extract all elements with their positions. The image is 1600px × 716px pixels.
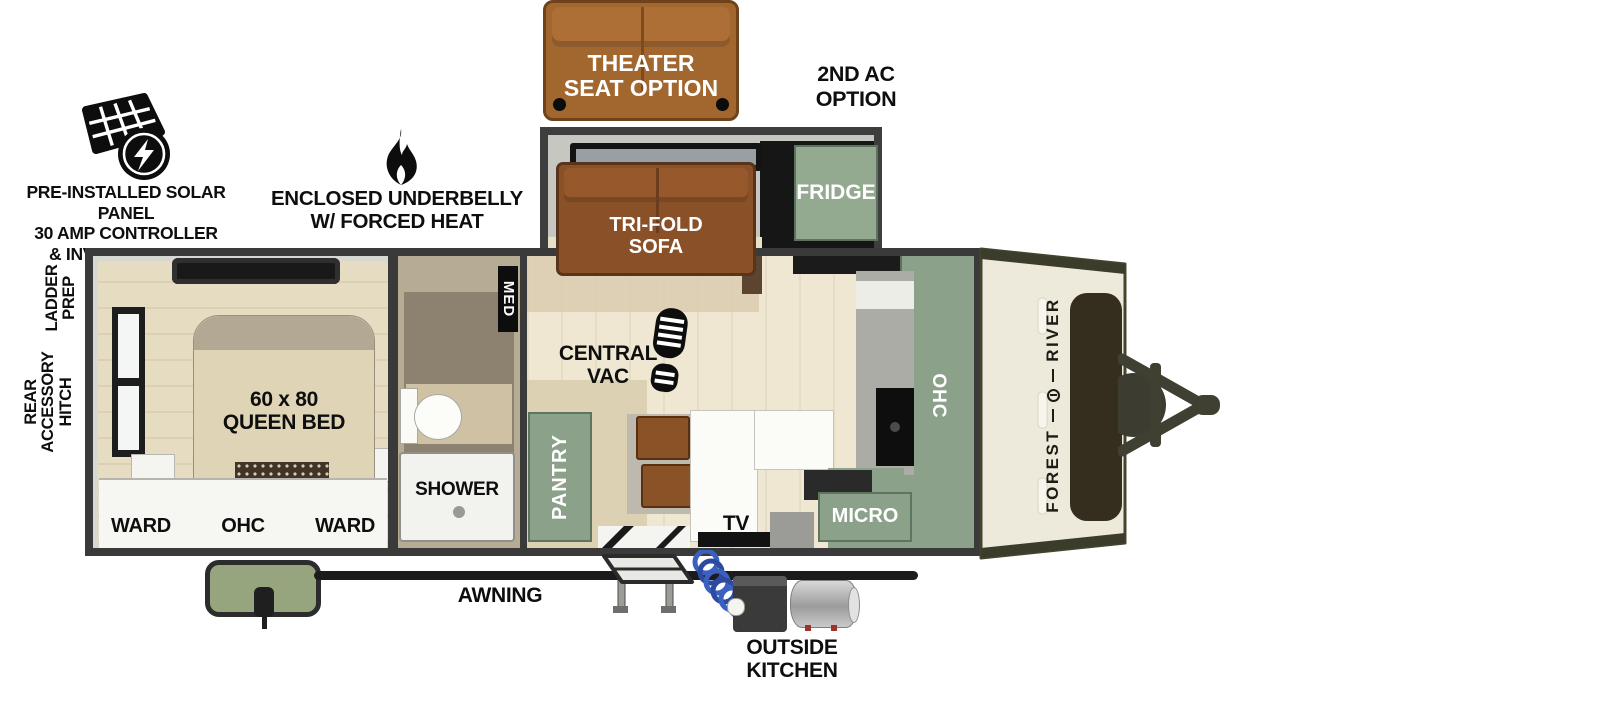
storage-stem (262, 615, 267, 629)
trailer-main-body: 60 x 80 QUEEN BED WARD OHC WARD MED SHOW… (85, 248, 982, 556)
ladder-prep-label: LADDER PREP (44, 258, 80, 338)
tank-valve (805, 625, 811, 631)
second-ac-option-label: 2ND AC OPTION (800, 62, 912, 118)
outside-griddle (733, 576, 787, 632)
enclosed-underbelly-label: ENCLOSED UNDERBELLY W/ FORCED HEAT (264, 188, 530, 240)
pantry: PANTRY (528, 412, 592, 542)
queen-bed-label: 60 x 80 QUEEN BED (194, 388, 374, 434)
griddle-lid (733, 576, 787, 586)
fridge: FRIDGE (794, 145, 878, 241)
entry-steps (596, 552, 698, 622)
outside-faucet-icon (727, 598, 745, 616)
skylight (172, 258, 340, 284)
tank-valve (831, 625, 837, 631)
window-pane (118, 314, 139, 378)
outside-kitchen-hatch (770, 512, 814, 548)
microwave: MICRO (818, 492, 912, 542)
fridge-label: FRIDGE (796, 147, 876, 239)
tv (698, 532, 776, 547)
theater-seat-label: THEATER SEAT OPTION (546, 51, 736, 101)
brand-forest: FOREST (1043, 429, 1063, 513)
shower-drain (453, 506, 465, 518)
sofa-leg-icon (716, 98, 729, 111)
tongue-hitch-icon (1118, 335, 1222, 475)
shower: SHOWER (399, 452, 515, 542)
solar-panel-icon (68, 90, 184, 188)
tri-fold-sofa-label: TRI-FOLD SOFA (559, 215, 753, 258)
outside-kitchen-label: OUTSIDE KITCHEN (728, 636, 856, 684)
kitchen-ohc-label: OHC (926, 361, 950, 431)
micro-label: MICRO (832, 506, 899, 528)
burner-icon (890, 422, 900, 432)
shower-label: SHOWER (401, 480, 513, 501)
toilet (414, 394, 462, 440)
logo-dash (1052, 409, 1055, 422)
solar-panel-label: PRE-INSTALLED SOLAR PANEL 30 AMP CONTROL… (0, 182, 252, 244)
theater-seat-option: THEATER SEAT OPTION (543, 0, 739, 121)
bed-headboard (194, 316, 374, 350)
storage-knob (254, 587, 274, 617)
bedroom-ohc-label: OHC (221, 515, 265, 537)
cooktop (876, 388, 914, 466)
awning-label: AWNING (448, 584, 552, 610)
wall-bedroom-bathroom (388, 256, 398, 548)
ward-left-label: WARD (111, 515, 171, 537)
bumper-storage-box (205, 560, 321, 617)
dinette-chair (641, 464, 693, 508)
dinette-chair (636, 416, 690, 460)
fr-emblem-icon (1047, 389, 1060, 402)
dinette-table (754, 410, 834, 470)
medicine-cabinet: MED (498, 266, 518, 332)
rv-floor-plan: THEATER SEAT OPTION 2ND AC OPTION PRE-IN… (0, 0, 1600, 716)
forest-river-logo: FOREST RIVER (1038, 285, 1068, 525)
rear-accessory-hitch-label: REAR ACCESSORY HITCH (23, 346, 77, 458)
outside-kitchen-tank (790, 580, 858, 628)
entry-door (598, 526, 690, 548)
ward-right-label: WARD (315, 515, 375, 537)
logo-dash (1052, 369, 1055, 382)
kitchen-sink (856, 281, 914, 309)
wall-bathroom-living (520, 256, 527, 548)
sofa-leg-icon (553, 98, 566, 111)
bedroom-window (112, 307, 145, 457)
wardrobe-bar: WARD OHC WARD (99, 478, 387, 548)
flame-icon (378, 128, 424, 188)
tank-cap (848, 587, 860, 623)
tri-fold-sofa: TRI-FOLD SOFA (556, 162, 756, 276)
window-pane (118, 386, 139, 450)
brand-river: RIVER (1043, 297, 1063, 361)
